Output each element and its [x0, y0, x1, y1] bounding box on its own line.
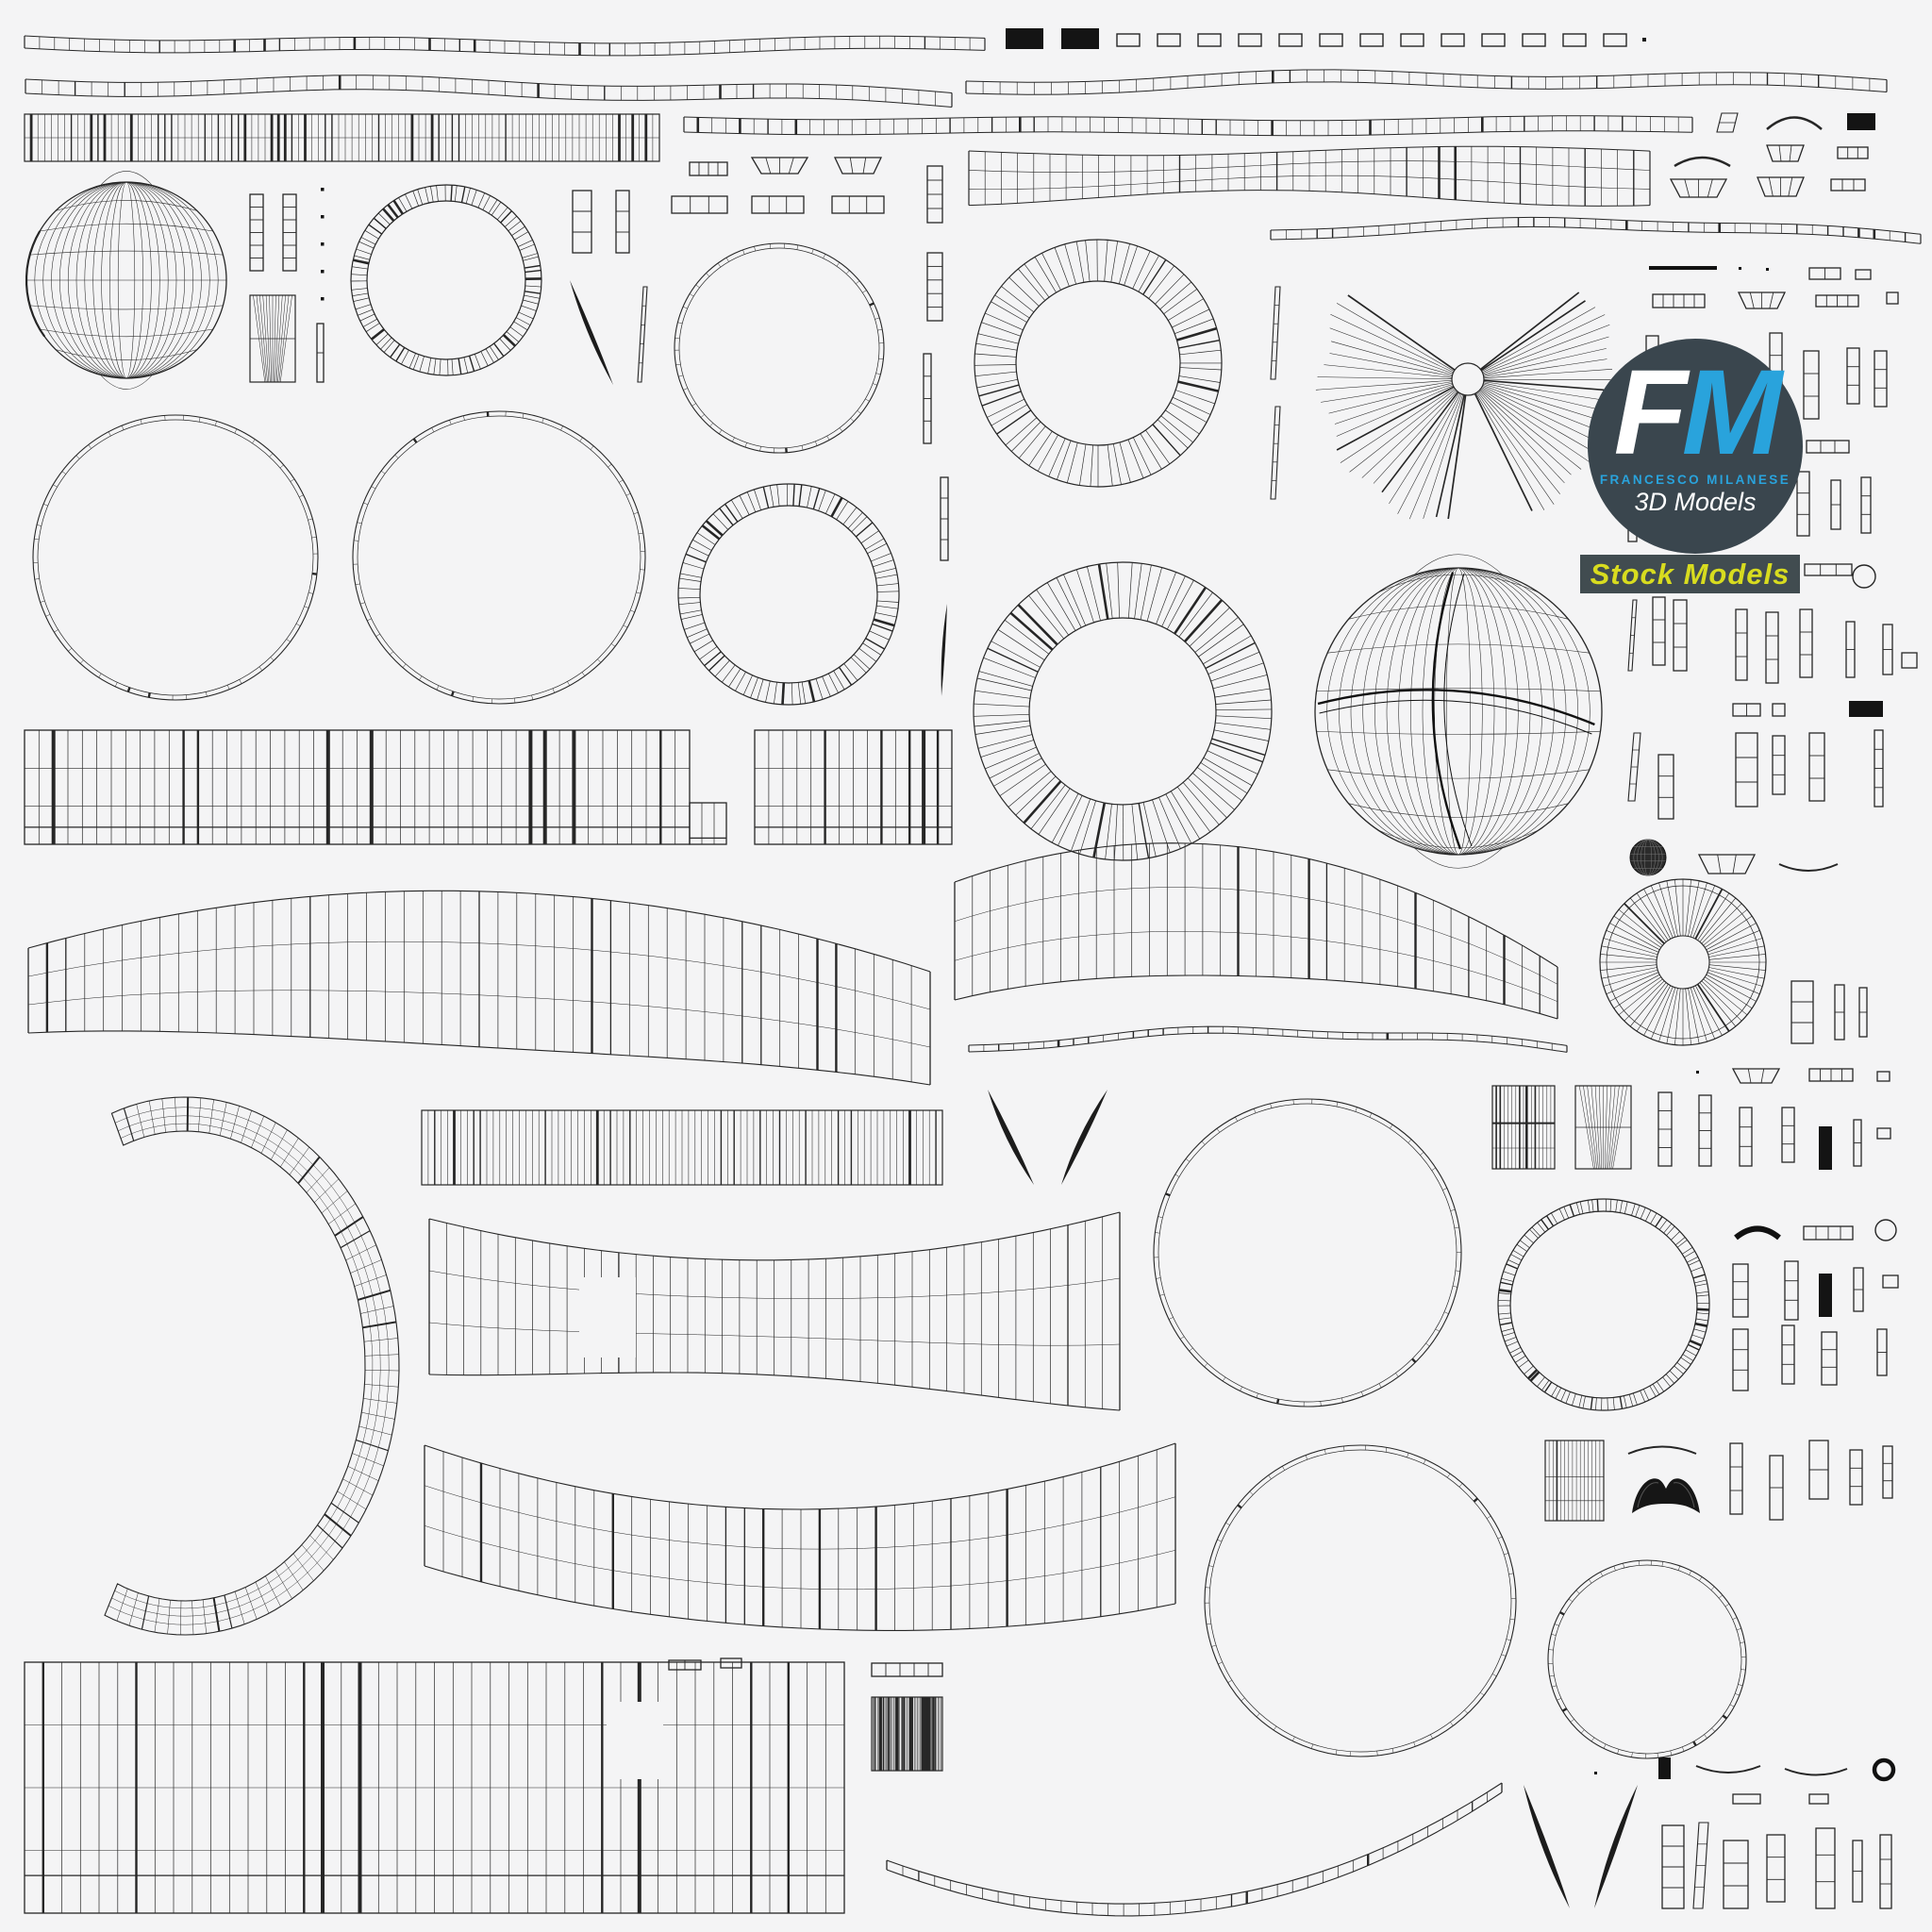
dark-ball [1630, 840, 1666, 875]
cell-bar [1883, 1275, 1898, 1288]
cell-bar [1809, 1069, 1853, 1081]
segment-ring [974, 562, 1272, 860]
cell-bar [1877, 1128, 1890, 1139]
black-bar [1819, 1274, 1832, 1317]
v-bar [1883, 1446, 1892, 1498]
v-bar [1835, 985, 1844, 1040]
black-chip [1847, 113, 1875, 130]
thin-circle [353, 411, 645, 704]
v-bar [1767, 1835, 1785, 1902]
v-bar [1883, 625, 1892, 675]
top-strip [966, 70, 1887, 94]
v-bar [1846, 622, 1855, 677]
trapezoid [1733, 1069, 1779, 1083]
segment-ring [351, 185, 541, 375]
cell-bar [1809, 268, 1840, 279]
cell-bar [1838, 147, 1868, 158]
black-chip [1061, 28, 1099, 49]
v-bar [1809, 1441, 1828, 1499]
small-circle [1853, 565, 1875, 588]
uv-dot [1696, 1071, 1699, 1074]
cell-bar [1805, 564, 1852, 575]
thin-strip [684, 116, 1692, 136]
tread-strip [25, 114, 659, 161]
v-bar [1699, 1095, 1711, 1166]
sliver [1693, 1823, 1708, 1908]
black-bar [1658, 1757, 1671, 1779]
v-bar [616, 191, 629, 253]
cell-bar [690, 162, 727, 175]
v-bar [1791, 981, 1813, 1043]
v-bar [1658, 1092, 1672, 1166]
v-bar [250, 194, 263, 271]
uv-dot [1766, 268, 1769, 271]
logo-letter-m: M [1682, 356, 1777, 471]
v-bar [1785, 1261, 1798, 1320]
v-bar [1724, 1840, 1748, 1908]
cell-bar [1887, 292, 1898, 304]
logo-monogram: F M [1614, 356, 1777, 471]
v-bar [1736, 609, 1747, 680]
cell-bar [872, 1663, 942, 1676]
logo-letter-f: F [1614, 356, 1682, 471]
curved-band [429, 1212, 1120, 1410]
wireframe-islands-layer [0, 0, 1932, 1932]
v-bar [1733, 1264, 1748, 1317]
uv-dot [1642, 38, 1646, 42]
cell-bar [1807, 441, 1849, 453]
v-bar [1658, 755, 1674, 819]
small-circle [1875, 1220, 1896, 1241]
v-bar [1874, 730, 1883, 807]
curved-band [955, 843, 1557, 1019]
v-bar [1859, 988, 1867, 1037]
logo-tagline: 3D Models [1634, 488, 1756, 517]
v-bar [573, 191, 591, 253]
cell-bar [672, 196, 727, 213]
v-bar [1822, 1332, 1837, 1385]
dense-block [1575, 1086, 1631, 1169]
cell-bar [1773, 704, 1785, 716]
black-chip [1849, 701, 1883, 717]
segment-ring [974, 240, 1222, 487]
black-chip [1006, 28, 1043, 49]
small-donut [1874, 1760, 1893, 1779]
cell-bar [1816, 295, 1858, 307]
long-arc-strip [1271, 217, 1921, 243]
arc-chip [1696, 1766, 1760, 1773]
v-bar [1804, 351, 1819, 419]
v-bar [1797, 472, 1809, 536]
cell-bar [721, 1658, 741, 1668]
dense-bar [872, 1697, 942, 1771]
wavy-grid-strip [969, 146, 1650, 206]
segment-ring [678, 484, 899, 705]
thin-arc-line [969, 1026, 1567, 1052]
v-bar [1850, 1450, 1862, 1505]
grid-panel [25, 730, 690, 844]
dense-block [1545, 1441, 1604, 1521]
v-bar [1674, 600, 1687, 671]
thin-circle [33, 415, 318, 700]
needle [1061, 1090, 1108, 1185]
arc-chip [1767, 118, 1822, 130]
dense-block [250, 295, 295, 382]
v-bar [1782, 1325, 1794, 1384]
sliver [638, 287, 647, 382]
v-bar [1736, 733, 1757, 807]
sliver [1628, 733, 1641, 801]
v-bar [1847, 348, 1859, 404]
needle [988, 1090, 1034, 1185]
v-bar [1831, 480, 1840, 529]
dark-mustache [1632, 1478, 1700, 1513]
v-bar [1733, 1329, 1748, 1391]
v-bar [1854, 1268, 1863, 1311]
v-bar [1809, 733, 1824, 801]
v-bar [1766, 612, 1778, 683]
cell-bar [1804, 1226, 1853, 1240]
fm-logo-badge: F M FRANCESCO MILANESE 3D Models [1588, 339, 1803, 554]
uv-sphere [26, 171, 226, 389]
curved-band [28, 891, 930, 1085]
grid-panel [755, 730, 952, 844]
v-bar [1853, 1840, 1862, 1902]
v-bar [1730, 1443, 1742, 1514]
top-strip [25, 36, 985, 56]
dash-row [1117, 34, 1626, 46]
cell-bar [1831, 179, 1865, 191]
cell-bar [1653, 294, 1705, 308]
v-bar [1874, 351, 1887, 407]
radial-fan [1316, 292, 1620, 519]
cell-bar [1733, 704, 1760, 716]
arc-chip [1674, 158, 1730, 166]
trapezoid [752, 158, 808, 174]
trapezoid [1739, 292, 1785, 308]
stock-models-label: Stock Models [1591, 558, 1790, 591]
v-bar [1800, 609, 1812, 677]
v-bar [1861, 477, 1871, 533]
thin-sliver [317, 324, 324, 382]
v-bar [283, 194, 296, 271]
v-bar [1653, 597, 1665, 665]
radial-disc [1600, 879, 1766, 1045]
band-ring [1498, 1199, 1709, 1410]
cell-bar [1856, 270, 1871, 279]
v-bar [1662, 1825, 1684, 1908]
v-bar [1880, 1835, 1891, 1908]
dot-column [321, 188, 325, 301]
dense-block [1492, 1086, 1555, 1169]
needle [1524, 1785, 1570, 1908]
dark-arc [1736, 1229, 1779, 1239]
arc-chip [1779, 864, 1838, 871]
needle [1594, 1785, 1638, 1908]
logo-author-name: FRANCESCO MILANESE [1600, 473, 1790, 487]
v-bar [927, 253, 942, 321]
v-bar [927, 166, 942, 223]
thin-circle [1205, 1445, 1516, 1757]
grid-panel-step [690, 803, 726, 844]
uv-dot [1594, 1772, 1597, 1774]
cell-bar [1809, 1794, 1828, 1804]
trapezoid [835, 158, 881, 174]
arc-chip [1785, 1769, 1847, 1775]
trapezoid [1767, 145, 1804, 161]
trapezoid [1757, 177, 1804, 196]
cell-bar [1877, 1072, 1890, 1081]
v-bar [1770, 1456, 1783, 1520]
needle [941, 604, 947, 696]
v-bar [1782, 1108, 1794, 1162]
needle [570, 280, 613, 385]
v-bar [1816, 1828, 1835, 1908]
trapezoid [1699, 855, 1755, 874]
v-bar [924, 354, 931, 443]
smile-strip [887, 1783, 1502, 1916]
sliver [1628, 600, 1637, 671]
top-strip [25, 75, 952, 108]
arc-chip [1628, 1447, 1696, 1455]
c-ring [105, 1097, 399, 1635]
black-bar [1819, 1126, 1832, 1170]
thin-circle [1154, 1099, 1461, 1407]
cell-bar [1902, 653, 1917, 668]
uv-template-sheet: F M FRANCESCO MILANESE 3D Models Stock M… [0, 0, 1932, 1932]
v-bar [1854, 1120, 1861, 1166]
cell-bar [1733, 1794, 1760, 1804]
thin-circle [1548, 1560, 1746, 1758]
small-quad [1717, 113, 1738, 132]
v-bar [941, 477, 948, 560]
sliver [1271, 287, 1280, 379]
dense-bar [422, 1110, 942, 1185]
v-bar [1773, 736, 1785, 794]
curved-band [425, 1443, 1175, 1630]
stock-models-banner: Stock Models [1580, 555, 1800, 593]
grid-panel-large [25, 1662, 844, 1913]
cell-bar [752, 196, 804, 213]
v-bar [1877, 1329, 1887, 1375]
wire-sphere [1315, 555, 1602, 869]
trapezoid [1671, 179, 1726, 197]
v-bar [1740, 1108, 1752, 1166]
thin-circle [675, 243, 884, 453]
cell-bar [832, 196, 884, 213]
uv-dot [1739, 267, 1741, 270]
sliver [1271, 407, 1280, 499]
